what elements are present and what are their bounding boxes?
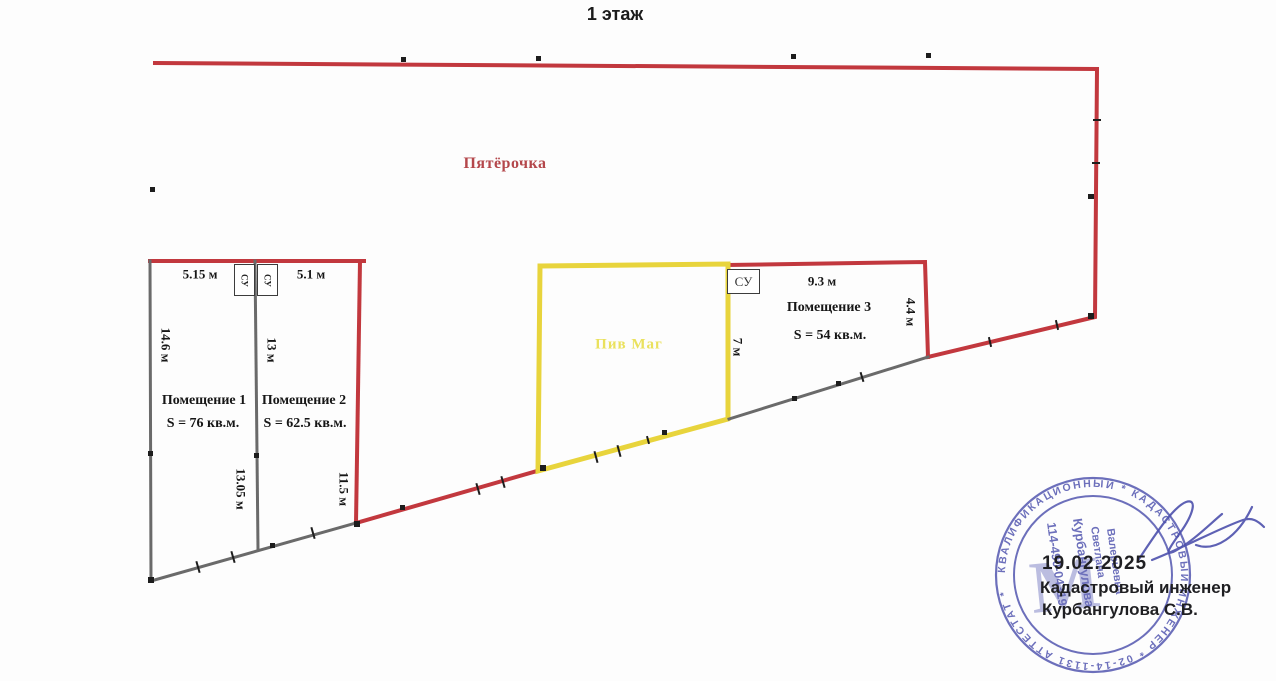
beer-shop-label: Пив Маг [595,338,663,353]
dim-room2-top: 5.1 м [297,268,325,281]
dim-room1-top: 5.15 м [183,268,218,281]
su-box-2-label: СУ [263,274,273,287]
room2-area: S = 62.5 кв.м. [264,417,347,431]
stamp-date: 19.02.2025 [1042,553,1147,575]
survey-point-marks [148,53,1094,583]
dim-mid-wall-lower: 13.05 м [235,468,248,509]
su-box-3-label: СУ [735,274,753,290]
room3-name: Помещение 3 [787,301,871,315]
store-name-label: Пятёрочка [463,156,546,172]
dim-mid-wall-upper: 13 м [266,337,279,362]
floor-plan-page: 1 этаж Пятёрочка Пив Маг 5.15 м 5.1 м 14… [0,0,1276,681]
room1-name: Помещение 1 [162,394,246,408]
room1-area: S = 76 кв.м. [167,417,239,431]
su-box-1: СУ [234,264,255,296]
yellow-outline [538,264,728,471]
su-box-2: СУ [257,264,278,296]
room3-area: S = 54 кв.м. [794,329,866,343]
dim-left-wall: 14.6 м [160,328,173,363]
room2-name: Помещение 2 [262,394,346,408]
su-box-1-label: СУ [240,274,250,287]
stamp-caption-role: Кадастровый инженер [1040,578,1231,598]
dim-room3-left: 7 м [732,338,745,357]
dim-room3-right: 4.4 м [905,298,918,326]
red-outline [150,63,1097,523]
su-box-3: СУ [727,269,760,294]
dim-room2-right-wall: 11.5 м [338,472,351,506]
page-title: 1 этаж [587,4,643,25]
stamp-caption-name: Курбангулова С.В. [1042,600,1198,620]
dim-room3-top: 9.3 м [808,275,836,288]
